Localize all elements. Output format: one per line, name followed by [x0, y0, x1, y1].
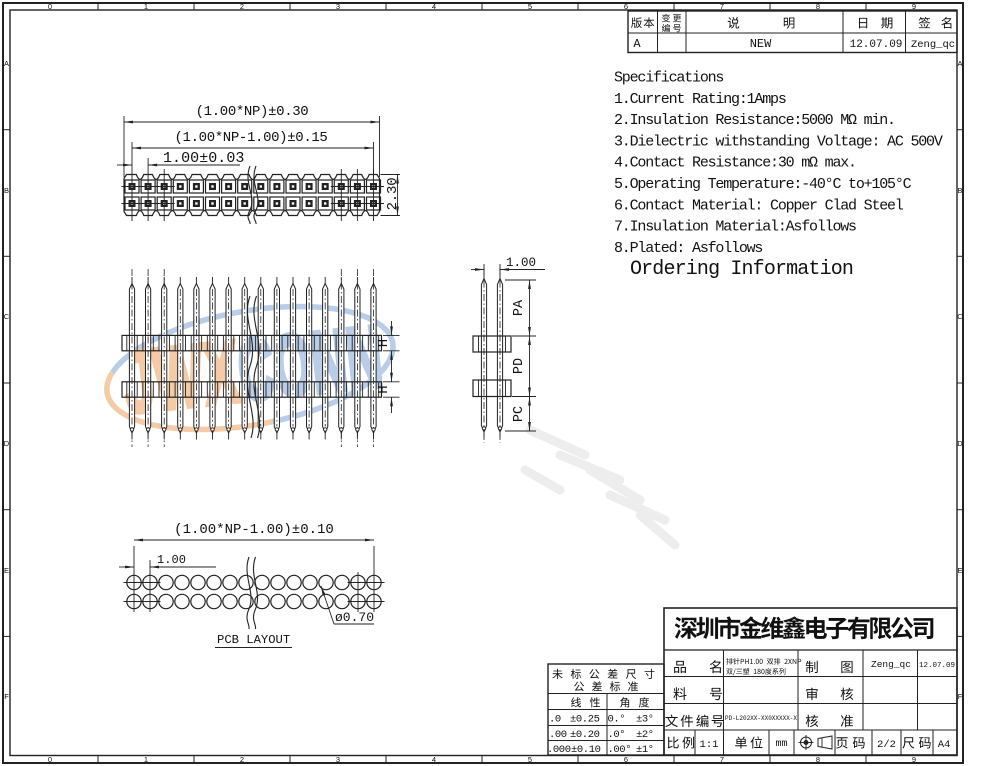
svg-text:A: A [4, 59, 9, 68]
svg-text:2.30: 2.30 [385, 178, 401, 211]
svg-text:3: 3 [336, 755, 340, 764]
svg-text:mm: mm [775, 739, 787, 750]
svg-text:±2°: ±2° [636, 729, 654, 741]
svg-text:9: 9 [912, 755, 916, 764]
svg-text:PD-L202XX-XX0XXXXX-X: PD-L202XX-XX0XXXXX-X [725, 715, 797, 722]
svg-text:1.00: 1.00 [157, 553, 186, 567]
svg-text:1: 1 [144, 2, 148, 11]
svg-text:2.Insulation Resistance:5000 M: 2.Insulation Resistance:5000 MΩ min. [614, 112, 895, 129]
svg-text:7: 7 [720, 2, 724, 11]
svg-text:PD: PD [512, 358, 527, 374]
svg-text:(1.00*NP-1.00)±0.15: (1.00*NP-1.00)±0.15 [175, 130, 328, 146]
svg-text:A: A [633, 37, 641, 51]
svg-text:.0: .0 [549, 714, 561, 726]
svg-text:F: F [958, 692, 963, 701]
svg-text:1.Current Rating:1Amps: 1.Current Rating:1Amps [614, 91, 786, 108]
svg-text:6: 6 [624, 2, 628, 11]
svg-text:C: C [957, 312, 963, 321]
svg-text:2: 2 [240, 2, 244, 11]
svg-text:±0.10: ±0.10 [571, 744, 601, 756]
svg-text:NEW: NEW [750, 37, 772, 51]
svg-text:0.°: 0.° [608, 714, 626, 726]
svg-text:2/2: 2/2 [877, 739, 896, 751]
svg-text:1: 1 [144, 755, 148, 764]
svg-text:±0.25: ±0.25 [570, 714, 600, 726]
svg-text:.00: .00 [549, 729, 567, 741]
svg-text:B: B [957, 186, 962, 195]
svg-text:0: 0 [48, 2, 52, 11]
svg-text:5: 5 [528, 2, 532, 11]
svg-text:D: D [4, 439, 10, 448]
svg-text:3: 3 [336, 2, 340, 11]
svg-text:H: H [376, 385, 392, 393]
svg-text:.0°: .0° [608, 729, 626, 741]
svg-text:ø0.70: ø0.70 [335, 610, 374, 625]
svg-text:.000: .000 [547, 744, 571, 756]
svg-text:2: 2 [240, 755, 244, 764]
svg-text:.00°: .00° [608, 744, 632, 756]
svg-text:7: 7 [720, 755, 724, 764]
svg-text:Zeng_qc: Zeng_qc [871, 659, 911, 670]
svg-text:H: H [376, 339, 392, 347]
svg-text:B: B [4, 186, 9, 195]
svg-text:4: 4 [432, 2, 436, 11]
svg-text:8: 8 [816, 755, 820, 764]
svg-text:8: 8 [816, 2, 820, 11]
svg-text:Ordering Information: Ordering Information [630, 258, 853, 281]
svg-text:PC: PC [512, 406, 527, 422]
svg-text:1.00±0.03: 1.00±0.03 [163, 150, 244, 167]
svg-text:4: 4 [432, 755, 436, 764]
svg-text:12.07.09: 12.07.09 [850, 39, 903, 51]
svg-text:PA: PA [512, 299, 527, 316]
svg-text:8.Plated: Asfollows: 8.Plated: Asfollows [614, 240, 762, 257]
svg-text:E: E [957, 566, 962, 575]
svg-text:9: 9 [912, 2, 916, 11]
svg-text:F: F [4, 692, 9, 701]
svg-text:(1.00*NP)±0.30: (1.00*NP)±0.30 [196, 104, 309, 120]
svg-text:12.07.09: 12.07.09 [919, 662, 955, 670]
svg-text:6.Contact Material: Copper Cla: 6.Contact Material: Copper Clad Steel [614, 197, 904, 214]
svg-text:(1.00*NP-1.00)±0.10: (1.00*NP-1.00)±0.10 [174, 522, 334, 538]
svg-text:6: 6 [624, 755, 628, 764]
svg-text:Specifications: Specifications [614, 70, 723, 87]
svg-text:3.Dielectric withstanding Volt: 3.Dielectric withstanding Voltage: AC 50… [614, 133, 943, 150]
svg-text:PCB LAYOUT: PCB LAYOUT [217, 633, 290, 647]
svg-text:E: E [4, 566, 9, 575]
svg-text:0: 0 [48, 755, 52, 764]
svg-text:±1°: ±1° [636, 744, 654, 756]
svg-text:7.Insulation Material:Asfollow: 7.Insulation Material:Asfollows [614, 219, 856, 236]
svg-text:C: C [4, 312, 10, 321]
svg-text:A: A [957, 59, 962, 68]
svg-text:1:1: 1:1 [700, 739, 719, 751]
svg-text:5.Operating Temperature:-40°C: 5.Operating Temperature:-40°C to+105°C [614, 176, 912, 193]
svg-text:A4: A4 [938, 739, 951, 751]
svg-text:D: D [957, 439, 963, 448]
svg-text:4.Contact Resistance:30 mΩ max: 4.Contact Resistance:30 mΩ max. [614, 155, 856, 172]
svg-text:±3°: ±3° [636, 714, 654, 726]
svg-text:5: 5 [528, 755, 532, 764]
svg-text:1.00: 1.00 [506, 256, 536, 270]
svg-text:Zeng_qc: Zeng_qc [911, 39, 955, 51]
svg-text:±0.20: ±0.20 [570, 729, 600, 741]
